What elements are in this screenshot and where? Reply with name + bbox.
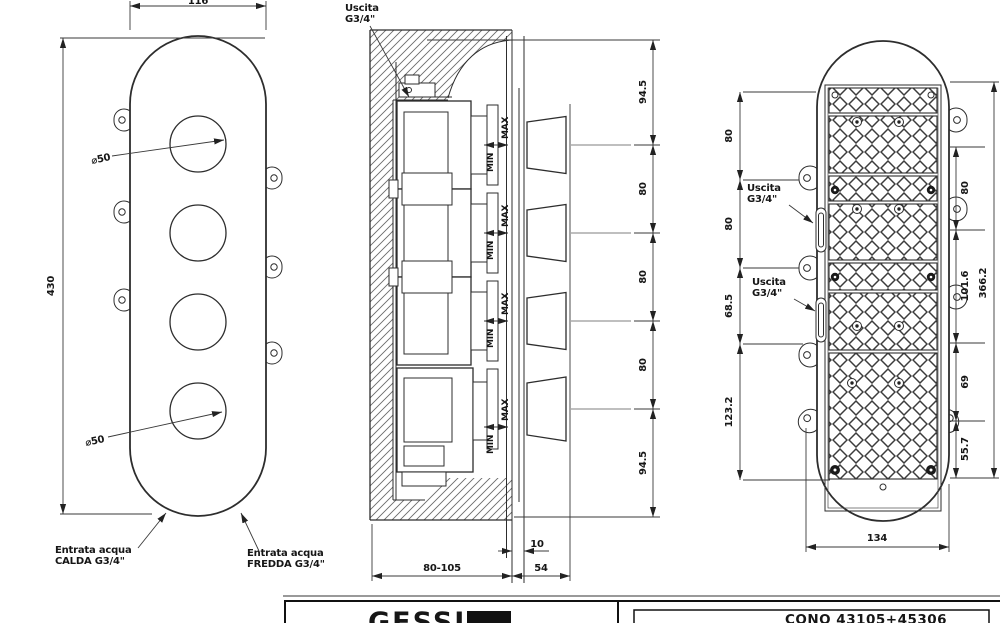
outlet-line2: G3/4"	[747, 194, 777, 205]
max-label: MAX	[501, 116, 511, 139]
inlet-hot-line2: CALDA G3/4"	[55, 556, 125, 567]
min-label: MIN	[486, 153, 496, 172]
outlet-line1: Uscita	[345, 3, 379, 14]
dia-label: ⌀50	[84, 434, 105, 449]
lattice-panels	[829, 88, 937, 479]
dim-label-height: 430	[46, 276, 57, 297]
dia-label: ⌀50	[90, 152, 111, 167]
dim-label: 94.5	[638, 80, 649, 104]
dim-label: 80	[638, 358, 649, 372]
max-label: MAX	[501, 398, 511, 421]
max-label: MAX	[501, 292, 511, 315]
brand-logo-text: GESSI	[368, 607, 466, 623]
handle-centerlines	[571, 145, 631, 409]
outlet-line1: Uscita	[752, 277, 786, 288]
dim-label-plate: 10	[530, 539, 544, 550]
section-view: MAX MIN MAX MIN MAX MIN MAX MIN Uscita G…	[345, 3, 660, 583]
dim-label: 94.5	[638, 451, 649, 475]
dim-label: 80	[724, 129, 735, 143]
technical-drawing-sheet: 116 430 ⌀50 ⌀50 Entrata acqua CALDA G3/4…	[0, 0, 1000, 623]
front-view: 116 430 ⌀50 ⌀50 Entrata acqua CALDA G3/4…	[46, 0, 325, 570]
max-label: MAX	[501, 204, 511, 227]
handle-cones	[527, 117, 566, 442]
inlet-hot-line1: Entrata acqua	[55, 545, 132, 556]
front-dim-width: 116	[130, 0, 266, 30]
back-outlet-lower-label: Uscita G3/4"	[752, 277, 815, 311]
dim-label: 68.5	[724, 294, 735, 318]
brand-logo-mark	[467, 611, 511, 623]
dim-label: 123.2	[724, 396, 735, 427]
dim-label-width: 116	[188, 0, 209, 7]
front-inlet-cold-label: Entrata acqua FREDDA G3/4"	[241, 513, 325, 570]
min-label: MIN	[486, 435, 496, 454]
inlet-cold-line1: Entrata acqua	[247, 548, 324, 559]
dim-label: 80	[960, 181, 971, 195]
front-inlet-hot-label: Entrata acqua CALDA G3/4"	[55, 513, 166, 567]
valve-unit-4-thermostat	[397, 368, 498, 486]
min-label: MIN	[486, 241, 496, 260]
dim-label: 55.7	[960, 437, 971, 461]
back-outlet-upper-label: Uscita G3/4"	[747, 183, 813, 223]
front-plate	[130, 36, 266, 516]
back-view: Uscita G3/4" Uscita G3/4" 80 80 68.5 123…	[724, 41, 999, 552]
dim-label-overall: 366.2	[978, 267, 989, 298]
dim-label: 80	[638, 270, 649, 284]
dim-label-width: 134	[867, 533, 888, 544]
section-bottom-dims: 80-105 54 10	[372, 524, 570, 581]
dim-label: 80	[724, 217, 735, 231]
dim-label: 80	[638, 182, 649, 196]
dim-label-wall-range: 80-105	[423, 563, 461, 574]
dim-label-protrusion: 54	[534, 563, 548, 574]
inlet-cold-line2: FREDDA G3/4"	[247, 559, 325, 570]
dim-label: 69	[960, 375, 971, 389]
drawing-svg: 116 430 ⌀50 ⌀50 Entrata acqua CALDA G3/4…	[0, 0, 1000, 623]
model-number: CONO 43105+45306	[785, 612, 947, 623]
outlet-line2: G3/4"	[345, 14, 375, 25]
title-block: GESSI CONO 43105+45306	[283, 596, 1000, 623]
min-label: MIN	[486, 329, 496, 348]
outlet-line1: Uscita	[747, 183, 781, 194]
outlet-line2: G3/4"	[752, 288, 782, 299]
dim-label: 101.6	[960, 270, 971, 301]
